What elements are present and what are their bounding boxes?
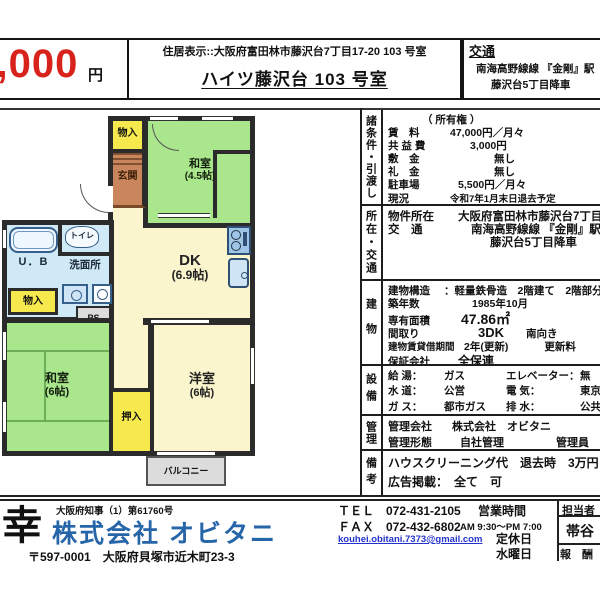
access-title: 交通 bbox=[469, 41, 495, 60]
window-mark bbox=[2, 402, 7, 432]
cell-value: 東京電力 bbox=[580, 383, 600, 398]
cell-label: 現況 bbox=[388, 191, 444, 204]
price-value: 47,000 bbox=[0, 42, 78, 87]
cell-value: 公営 bbox=[444, 383, 506, 398]
title-box: 住居表示::大阪府富田林市藤沢台7丁目17-20 103 号室 ハイツ藤沢台 1… bbox=[129, 38, 462, 100]
tatami-line bbox=[7, 420, 109, 422]
table-row: 共 益 費3,000円 bbox=[388, 138, 600, 151]
cell-label: 排 水： bbox=[506, 399, 580, 414]
table-row: 建物賃貸借期間2年(更新)更新料 bbox=[388, 339, 600, 352]
room-label-balcony: バルコニー bbox=[164, 466, 209, 476]
window-mark bbox=[157, 451, 215, 456]
door-arc-entrance bbox=[80, 184, 109, 213]
cell-value: 公共下水 bbox=[580, 399, 600, 414]
section-label-equipment: 設備 bbox=[360, 366, 383, 414]
cell-label: 水 道： bbox=[388, 383, 444, 398]
tatami-line bbox=[7, 350, 109, 352]
cell-extra: 管理員 bbox=[556, 434, 589, 450]
tel-number: ＴＥＬ 072-431-2105 bbox=[338, 502, 461, 519]
room-storage-top: 物入 bbox=[113, 121, 146, 153]
cell-value: 藤沢台5丁目降車 bbox=[490, 234, 577, 250]
section-building: 建物 建物構造：軽量鉄骨造 2階建て 2階部分 築年数1985年10月 専有面積… bbox=[360, 279, 600, 364]
staff-box-border bbox=[557, 543, 600, 545]
room-label-tatami45: 和室 (4.5帖) bbox=[160, 158, 240, 182]
cell-value: 都市ガス bbox=[444, 399, 506, 414]
section-label-conditions: 諸条件・引渡し bbox=[360, 110, 383, 204]
company-address: 〒597-0001 大阪府貝塚市近木町23-3 bbox=[28, 548, 235, 565]
cell-label: エレベーター： bbox=[506, 368, 580, 383]
company-logo: 幸 bbox=[2, 506, 42, 546]
section-label-building: 建物 bbox=[360, 281, 383, 364]
cell-label: 給 湯： bbox=[388, 368, 444, 383]
table-row: ハウスクリーニング代 退去時 3万円 bbox=[388, 454, 600, 473]
table-row: ガ ス：都市ガス排 水：公共下水 bbox=[388, 399, 600, 414]
window-mark bbox=[202, 116, 233, 121]
cell-value: 全て 可 bbox=[454, 473, 502, 490]
table-row: 水 道：公営電 気：東京電力 bbox=[388, 383, 600, 398]
room-label-toilet: トイレ bbox=[64, 231, 100, 240]
address-line: 住居表示::大阪府富田林市藤沢台7丁目17-20 103 号室 bbox=[129, 43, 460, 59]
footer-rule bbox=[0, 495, 600, 497]
price-unit: 円 bbox=[88, 64, 103, 85]
room-label-entrance: 玄関 bbox=[118, 171, 138, 182]
cell-value: 自社管理 bbox=[460, 434, 504, 450]
cell-label: ガ ス： bbox=[388, 399, 444, 414]
room-entrance: 玄関 bbox=[113, 153, 146, 208]
cell-value: 株式会社 オビタニ bbox=[452, 418, 551, 434]
cell-label: 築年数 bbox=[388, 296, 444, 311]
wall-segment bbox=[58, 252, 112, 256]
access-box: 交通 南海高野線線 『金剛』駅 藤沢台5丁目降車 bbox=[462, 38, 600, 100]
cell-value: ハウスクリーニング代 退去時 3万円 bbox=[388, 454, 599, 471]
section-label-location: 所在・交通 bbox=[360, 206, 383, 279]
hours-label: 営業時間 bbox=[478, 502, 526, 519]
section-location: 所在・交通 物件所在大阪府富田林市藤沢台7丁目 交 通南海高野線線 『金剛』駅 … bbox=[360, 204, 600, 279]
kitchen-sink-icon bbox=[228, 258, 249, 288]
fee-label: 報 酬 bbox=[560, 546, 593, 562]
cell-label: 管理形態 bbox=[388, 434, 450, 450]
cell-label: 電 気： bbox=[506, 383, 580, 398]
table-row: 広告掲載：全て 可 bbox=[388, 473, 600, 492]
room-label-western: 洋室 (6帖) bbox=[162, 372, 242, 400]
washer-icon bbox=[92, 284, 112, 304]
cell-value: 全保連 bbox=[458, 352, 494, 364]
window-mark bbox=[2, 332, 7, 360]
staff-box-border bbox=[557, 500, 559, 561]
cell-extra: 更新料 bbox=[544, 339, 576, 354]
room-label-unit-bath: U．B bbox=[9, 256, 58, 269]
room-label-storage-left: 物入 bbox=[23, 296, 43, 307]
cell-value: 3DK bbox=[478, 325, 504, 340]
table-row: 建物構造：軽量鉄骨造 2階建て 2階部分 bbox=[388, 283, 600, 296]
cell-label: 広告掲載： bbox=[388, 473, 448, 490]
room-closet: 押入 bbox=[113, 388, 150, 451]
email-link[interactable]: kouhei.obitani.7373@gmail.com bbox=[338, 534, 482, 545]
table-row: 礼 金無し bbox=[388, 164, 600, 177]
section-equipment: 設備 給 湯：ガスエレベーター：無 水 道：公営電 気：東京電力 ガ ス：都市ガ… bbox=[360, 364, 600, 414]
table-row: 敷 金無し bbox=[388, 151, 600, 164]
washbasin-icon bbox=[62, 284, 88, 304]
cell-label: 交 通 bbox=[388, 221, 444, 237]
window-mark bbox=[150, 116, 178, 121]
cell-label: 管理会社 bbox=[388, 418, 450, 434]
staff-label: 担当者 bbox=[562, 502, 595, 518]
staff-name: 帯谷 bbox=[566, 521, 594, 541]
cell-value: 無 bbox=[580, 368, 591, 383]
sliding-door bbox=[158, 213, 210, 218]
section-label-management: 管理 bbox=[360, 416, 383, 449]
room-label-tatami6: 和室 (6帖) bbox=[12, 372, 102, 398]
section-remarks: 備考 ハウスクリーニング代 退去時 3万円 広告掲載：全て 可 bbox=[360, 449, 600, 495]
section-management: 管理 管理会社株式会社 オビタニ 管理形態自社管理管理員 bbox=[360, 414, 600, 449]
balcony-box: バルコニー bbox=[146, 456, 226, 486]
fax-number: ＦＡＸ 072-432-6802 bbox=[338, 518, 461, 535]
section-label-remarks: 備考 bbox=[360, 451, 383, 495]
table-row: 駐車場5,500円／月々 bbox=[388, 177, 600, 190]
table-row: 給 湯：ガスエレベーター：無 bbox=[388, 368, 600, 383]
room-label-closet: 押入 bbox=[122, 412, 142, 423]
section-conditions: 諸条件・引渡し （ 所有権 ） 賃 料47,000円／月々 共 益 費3,000… bbox=[360, 110, 600, 204]
window-mark bbox=[2, 230, 7, 248]
table-row: 専有面積47.86㎡ bbox=[388, 309, 600, 325]
table-row: 現況令和7年1月末日退去予定 bbox=[388, 191, 600, 204]
room-storage-left: 物入 bbox=[8, 288, 58, 315]
bathtub-icon bbox=[9, 227, 58, 253]
table-row: 管理形態自社管理管理員 bbox=[388, 434, 600, 450]
room-label-dk: DK (6.9帖) bbox=[140, 252, 240, 283]
cell-value: ガス bbox=[444, 368, 506, 383]
table-row: 間取り3DK南向き bbox=[388, 325, 600, 339]
room-label-washroom: 洗面所 bbox=[58, 259, 112, 271]
floorplan: 和室 (4.5帖) 物入 玄関 DK (6.9帖) U．B ト bbox=[0, 110, 360, 495]
table-row: 管理会社株式会社 オビタニ bbox=[388, 418, 600, 434]
access-line1: 南海高野線線 『金剛』駅 bbox=[476, 61, 594, 76]
window-mark bbox=[250, 348, 255, 384]
price-box: 47,000 円 bbox=[0, 38, 129, 100]
table-row: 物件所在大阪府富田林市藤沢台7丁目 bbox=[388, 208, 600, 221]
table-row: 交 通南海高野線線 『金剛』駅 bbox=[388, 221, 600, 234]
kitchen-stove-icon bbox=[227, 226, 251, 255]
wall-segment bbox=[213, 150, 250, 154]
wall-segment bbox=[58, 220, 62, 256]
table-row: （ 所有権 ） bbox=[388, 112, 600, 125]
table-row: 賃 料47,000円／月々 bbox=[388, 125, 600, 138]
company-name: 株式会社 オビタニ bbox=[52, 514, 277, 550]
building-name: ハイツ藤沢台 103 号室 bbox=[129, 65, 460, 90]
access-line2: 藤沢台5丁目降車 bbox=[491, 77, 570, 92]
footer-rule bbox=[0, 499, 600, 501]
cell-label: 保証会社 bbox=[388, 354, 444, 364]
holiday-value: 水曜日 bbox=[496, 545, 532, 562]
room-label-storage-top: 物入 bbox=[118, 128, 138, 139]
sliding-door bbox=[151, 319, 209, 324]
cell-value: 令和7年1月末日退去予定 bbox=[450, 191, 556, 204]
cell-label: 建物賃貸借期間 bbox=[388, 339, 462, 353]
